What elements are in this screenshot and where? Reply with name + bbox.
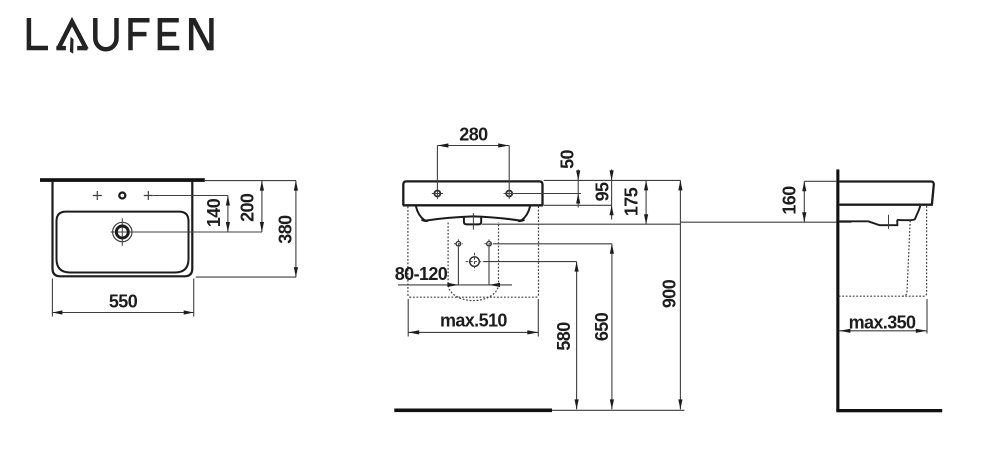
svg-text:140: 140	[204, 198, 224, 227]
svg-text:280: 280	[459, 124, 488, 144]
svg-text:580: 580	[554, 322, 574, 351]
svg-text:550: 550	[109, 292, 138, 312]
svg-text:max.350: max.350	[849, 312, 916, 332]
svg-text:900: 900	[659, 279, 679, 308]
svg-text:160: 160	[780, 186, 800, 215]
svg-text:95: 95	[592, 182, 612, 201]
svg-text:80-120: 80-120	[395, 264, 448, 284]
svg-text:max.510: max.510	[440, 311, 507, 331]
svg-text:200: 200	[238, 193, 258, 222]
svg-text:175: 175	[621, 187, 641, 216]
svg-text:50: 50	[557, 150, 577, 169]
svg-text:650: 650	[592, 312, 612, 341]
svg-text:380: 380	[275, 215, 295, 244]
